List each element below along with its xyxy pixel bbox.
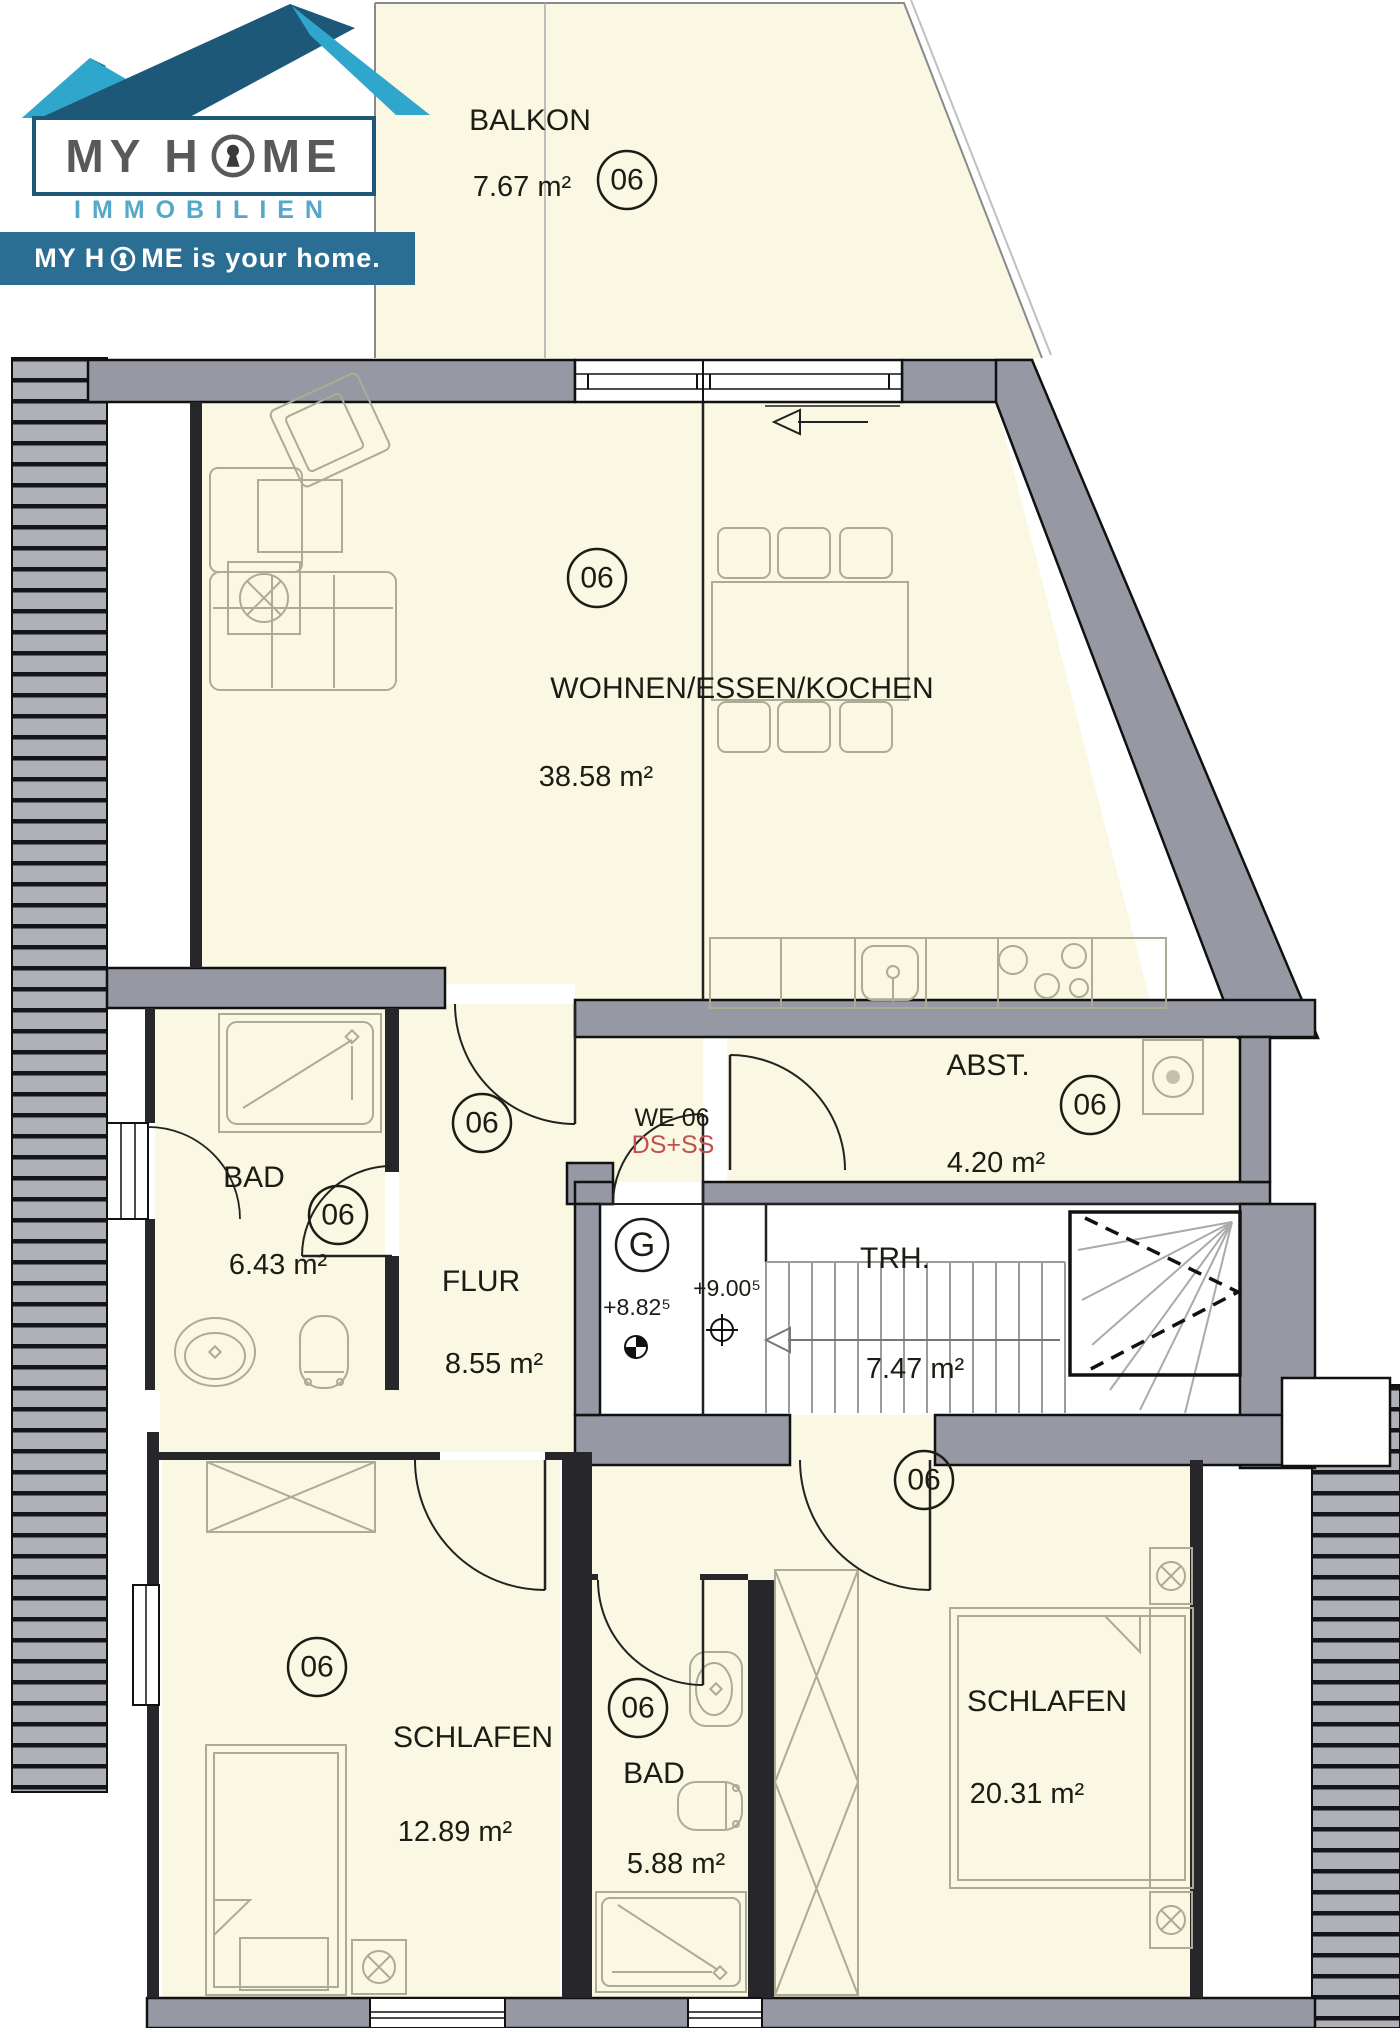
room-name-bath1: BAD — [223, 1161, 285, 1194]
ground-marker-label: G — [629, 1226, 655, 1264]
room-area-stairs: 7.47 m² — [866, 1353, 965, 1385]
keyhole-icon-small — [110, 246, 136, 272]
room-name-bath2: BAD — [623, 1757, 685, 1790]
unit-number: 06 — [907, 1464, 940, 1497]
logo-text-left: MY H — [65, 129, 203, 183]
corridor-b-floor — [592, 1460, 795, 1580]
room-area-bath1: 6.43 m² — [229, 1249, 328, 1281]
hatch-band-left — [12, 358, 107, 1792]
room-name-storage: ABST. — [946, 1049, 1029, 1082]
hallway-floor — [399, 1004, 575, 1394]
floor-plan-page: 06 06 06 06 06 06 06 06 — [0, 0, 1400, 2028]
tagline-left: MY H — [34, 243, 105, 274]
unit-number: 06 — [465, 1107, 498, 1140]
unit-systems-label: DS+SS — [632, 1131, 715, 1159]
room-area-hallway: 8.55 m² — [445, 1348, 544, 1380]
unit-number: 06 — [610, 164, 643, 197]
room-area-bedroom1: 12.89 m² — [398, 1816, 513, 1848]
bottom-window-1 — [370, 1998, 505, 2028]
logo-division-label: IMMOBILIEN — [32, 196, 376, 225]
unit-number: 06 — [1073, 1089, 1106, 1122]
room-name-bedroom2: SCHLAFEN — [967, 1685, 1127, 1718]
tagline-right: ME is your home. — [141, 243, 381, 274]
unit-number: 06 — [300, 1651, 333, 1684]
room-area-bedroom2: 20.31 m² — [970, 1778, 1085, 1810]
stair-landing-notch — [1282, 1378, 1390, 1466]
room-name-balcony: BALKON — [469, 104, 591, 137]
unit-number: 06 — [621, 1692, 654, 1725]
level-inner-label: +8.82⁵ — [603, 1294, 671, 1320]
bedroom1-window — [133, 1585, 159, 1705]
room-area-bath2: 5.88 m² — [627, 1848, 726, 1880]
company-logo: MY H ME IMMOBILIEN MY H ME is your home. — [10, 0, 450, 290]
corridor-a-floor — [160, 1390, 592, 1452]
logo-text-right: ME — [262, 129, 343, 183]
room-area-storage: 4.20 m² — [947, 1147, 1046, 1179]
bedroom2-door-bay — [790, 1415, 935, 1465]
keyhole-icon — [210, 133, 256, 179]
room-name-stairs: TRH. — [860, 1242, 930, 1275]
logo-roof-icon — [10, 2, 440, 120]
level-landing-label: +9.00⁵ — [693, 1275, 761, 1301]
logo-tagline-banner: MY H ME is your home. — [0, 232, 415, 285]
room-name-bedroom1: SCHLAFEN — [393, 1721, 553, 1754]
floor-plan-drawing: 06 06 06 06 06 06 06 06 — [0, 0, 1400, 2028]
unit-number: 06 — [580, 562, 613, 595]
logo-wordmark: MY H ME — [32, 116, 376, 196]
room-name-hallway: FLUR — [442, 1265, 520, 1298]
hatch-band-right — [1312, 1385, 1400, 2028]
unit-number: 06 — [321, 1199, 354, 1232]
bottom-window-2 — [688, 1998, 762, 2028]
room-area-living: 38.58 m² — [539, 761, 654, 793]
unit-we-label: WE 06 — [634, 1104, 709, 1132]
room-area-balcony: 7.67 m² — [473, 171, 572, 203]
survey-point-icon — [625, 1336, 647, 1358]
room-name-living: WOHNEN/ESSEN/KOCHEN — [550, 672, 933, 705]
